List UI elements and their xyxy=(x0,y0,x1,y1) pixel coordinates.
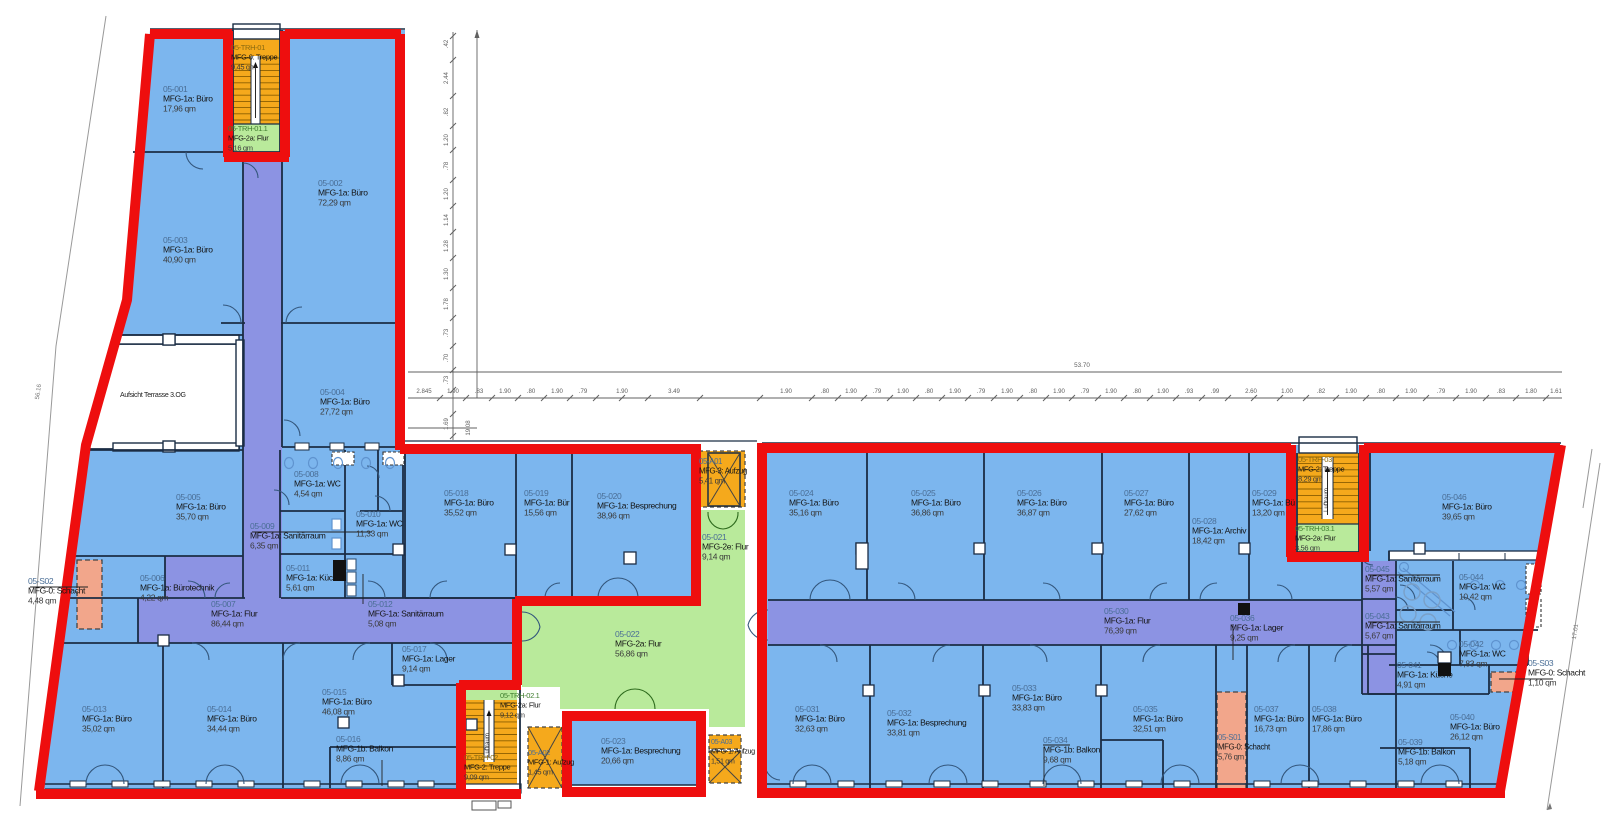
svg-text:35,16 qm: 35,16 qm xyxy=(789,507,822,517)
svg-text:MFG-2a: Flur: MFG-2a: Flur xyxy=(615,639,662,649)
svg-text:MFG-1a: Büro: MFG-1a: Büro xyxy=(911,498,961,508)
svg-text:3,56 qm: 3,56 qm xyxy=(1295,543,1320,552)
svg-text:MFG-1a: Bür: MFG-1a: Bür xyxy=(524,498,570,508)
svg-text:35,70 qm: 35,70 qm xyxy=(176,511,209,521)
svg-text:4,91 qm: 4,91 qm xyxy=(1397,679,1426,689)
svg-text:1.90: 1.90 xyxy=(1053,388,1065,395)
svg-text:MFG-1a: Büro: MFG-1a: Büro xyxy=(207,714,257,724)
svg-text:MFG-0: Treppe: MFG-0: Treppe xyxy=(231,53,277,62)
svg-text:05-TRH-02: 05-TRH-02 xyxy=(464,753,498,762)
svg-text:2.60: 2.60 xyxy=(1245,388,1257,395)
svg-text:86,44 qm: 86,44 qm xyxy=(211,618,244,628)
svg-text:32,51 qm: 32,51 qm xyxy=(1133,723,1166,733)
svg-text:05-042: 05-042 xyxy=(1459,639,1484,649)
svg-text:05-S02: 05-S02 xyxy=(28,576,54,586)
svg-text:2.845: 2.845 xyxy=(416,388,432,395)
svg-text:9,68 qm: 9,68 qm xyxy=(1043,754,1072,764)
svg-text:5,76 qm: 5,76 qm xyxy=(1218,752,1244,761)
svg-text:05-044: 05-044 xyxy=(1459,572,1484,582)
svg-text:1.90: 1.90 xyxy=(1465,388,1477,395)
svg-text:05-012: 05-012 xyxy=(368,599,393,609)
svg-text:05-037: 05-037 xyxy=(1254,704,1279,714)
svg-text:MFG-1a: Küche: MFG-1a: Küche xyxy=(1397,670,1453,680)
svg-text:05-021: 05-021 xyxy=(702,532,727,542)
svg-text:MFG-1a: Büro: MFG-1a: Büro xyxy=(1442,502,1492,512)
svg-text:1.78: 1.78 xyxy=(443,297,450,309)
svg-text:1.90: 1.90 xyxy=(949,388,961,395)
svg-text:9,45 qm: 9,45 qm xyxy=(231,62,256,71)
svg-text:05-007: 05-007 xyxy=(211,599,236,609)
svg-text:MFG-2e: Flur: MFG-2e: Flur xyxy=(702,542,749,552)
svg-text:Aufsicht Terrasse 3.OG: Aufsicht Terrasse 3.OG xyxy=(120,392,186,399)
svg-text:05-TRH-02.1: 05-TRH-02.1 xyxy=(500,691,540,700)
svg-text:8,86 qm: 8,86 qm xyxy=(336,753,365,763)
svg-text:1.61: 1.61 xyxy=(1550,388,1562,395)
svg-text:16,73 qm: 16,73 qm xyxy=(1254,723,1287,733)
svg-text:05-039: 05-039 xyxy=(1398,737,1423,747)
svg-text:9,09 qm: 9,09 qm xyxy=(464,772,489,781)
svg-text:05-038: 05-038 xyxy=(1312,704,1337,714)
svg-text:27,72 qm: 27,72 qm xyxy=(320,406,353,416)
svg-text:MFG-2: Treppe: MFG-2: Treppe xyxy=(464,763,510,772)
svg-text:34,44 qm: 34,44 qm xyxy=(207,723,240,733)
svg-text:.79: .79 xyxy=(1081,388,1090,395)
svg-text:3.49: 3.49 xyxy=(668,388,680,395)
svg-text:05-045: 05-045 xyxy=(1365,564,1390,574)
svg-text:26,12 qm: 26,12 qm xyxy=(1450,731,1483,741)
svg-text:4,22 qm: 4,22 qm xyxy=(140,592,169,602)
svg-text:.73: .73 xyxy=(443,328,450,337)
svg-text:9,14 qm: 9,14 qm xyxy=(702,551,731,561)
svg-text:.99: .99 xyxy=(1211,388,1220,395)
svg-text:9,12 qm: 9,12 qm xyxy=(500,710,525,719)
svg-text:46,08 qm: 46,08 qm xyxy=(322,706,355,716)
svg-text:05-018: 05-018 xyxy=(444,488,469,498)
svg-text:MFG-1b: Balkon: MFG-1b: Balkon xyxy=(1043,745,1101,755)
svg-text:05-046: 05-046 xyxy=(1442,492,1467,502)
svg-text:.83: .83 xyxy=(1497,388,1506,395)
svg-text:1.90: 1.90 xyxy=(499,388,511,395)
svg-text:05-S01: 05-S01 xyxy=(1218,733,1241,742)
svg-text:4,54 qm: 4,54 qm xyxy=(294,488,323,498)
svg-text:MFG-2: Treppe: MFG-2: Treppe xyxy=(1298,465,1344,474)
svg-text:MFG-1a: Besprechung: MFG-1a: Besprechung xyxy=(887,718,967,728)
svg-text:32,63 qm: 32,63 qm xyxy=(795,723,828,733)
svg-text:5,57 qm: 5,57 qm xyxy=(1365,583,1394,593)
svg-text:6,35 qm: 6,35 qm xyxy=(250,540,279,550)
svg-text:10,42 qm: 10,42 qm xyxy=(1459,591,1492,601)
svg-text:1.90: 1.90 xyxy=(551,388,563,395)
svg-text:05-A03: 05-A03 xyxy=(711,737,732,746)
svg-text:36,86 qm: 36,86 qm xyxy=(911,507,944,517)
svg-text:5,67 qm: 5,67 qm xyxy=(1365,630,1394,640)
svg-text:5,16 qm: 5,16 qm xyxy=(228,143,253,152)
svg-text:05-003: 05-003 xyxy=(163,235,188,245)
svg-text:56,86 qm: 56,86 qm xyxy=(615,648,648,658)
svg-text:MFG-1a: Büro: MFG-1a: Büro xyxy=(1012,693,1062,703)
svg-text:05-028: 05-028 xyxy=(1192,516,1217,526)
svg-text:05-022: 05-022 xyxy=(615,629,640,639)
svg-text:05-035: 05-035 xyxy=(1133,704,1158,714)
svg-text:.93: .93 xyxy=(1185,388,1194,395)
svg-text:.80: .80 xyxy=(527,388,536,395)
svg-text:1.90: 1.90 xyxy=(1405,388,1417,395)
svg-text:05-040: 05-040 xyxy=(1450,712,1475,722)
svg-text:1.90: 1.90 xyxy=(780,388,792,395)
svg-text:.83: .83 xyxy=(475,388,484,395)
svg-text:MFG-1a: WC: MFG-1a: WC xyxy=(1459,582,1506,592)
svg-text:8,29 qm: 8,29 qm xyxy=(1298,474,1323,483)
svg-text:18,42 qm: 18,42 qm xyxy=(1192,535,1225,545)
svg-text:.79: .79 xyxy=(579,388,588,395)
svg-text:.79: .79 xyxy=(1437,388,1446,395)
svg-text:1.00: 1.00 xyxy=(1281,388,1293,395)
svg-text:5,41 qm: 5,41 qm xyxy=(699,476,725,485)
svg-text:1,45 qm: 1,45 qm xyxy=(528,767,553,776)
svg-text:53.70: 53.70 xyxy=(1074,362,1090,369)
svg-text:5,18 qm: 5,18 qm xyxy=(1398,756,1427,766)
svg-text:MFG-2a: Flur: MFG-2a: Flur xyxy=(1295,534,1336,543)
svg-text:1.28: 1.28 xyxy=(443,239,450,251)
svg-text:05-020: 05-020 xyxy=(597,491,622,501)
svg-text:.79: .79 xyxy=(873,388,882,395)
svg-text:05-015: 05-015 xyxy=(322,687,347,697)
svg-text:MFG-1a: Lager: MFG-1a: Lager xyxy=(1230,623,1284,633)
svg-text:MFG-1a: Büro: MFG-1a: Büro xyxy=(444,498,494,508)
svg-text:05-023: 05-023 xyxy=(601,736,626,746)
svg-text:2.44: 2.44 xyxy=(443,71,450,83)
svg-text:.80: .80 xyxy=(1029,388,1038,395)
svg-text:.82: .82 xyxy=(1317,388,1326,395)
svg-text:.80: .80 xyxy=(821,388,830,395)
svg-text:72,29 qm: 72,29 qm xyxy=(318,197,351,207)
svg-text:05-029: 05-029 xyxy=(1252,488,1277,498)
svg-text:13,20 qm: 13,20 qm xyxy=(1252,507,1285,517)
svg-text:05-033: 05-033 xyxy=(1012,683,1037,693)
svg-text:.80: .80 xyxy=(925,388,934,395)
svg-text:MFG-1a: Büro: MFG-1a: Büro xyxy=(82,714,132,724)
svg-text:1.90: 1.90 xyxy=(1001,388,1013,395)
svg-text:05-032: 05-032 xyxy=(887,708,912,718)
svg-text:MFG-1a: WC: MFG-1a: WC xyxy=(294,479,341,489)
svg-text:11,33 qm: 11,33 qm xyxy=(356,528,388,538)
svg-text:76,39 qm: 76,39 qm xyxy=(1104,625,1137,635)
svg-text:MFG-1a: Bürotechnik: MFG-1a: Bürotechnik xyxy=(140,583,215,593)
svg-text:15,56 qm: 15,56 qm xyxy=(524,507,557,517)
svg-text:1.14: 1.14 xyxy=(443,213,450,225)
svg-text:MFG-3: Aufzug: MFG-3: Aufzug xyxy=(699,467,747,476)
svg-text:1.90: 1.90 xyxy=(1105,388,1117,395)
svg-text:1,51 qm: 1,51 qm xyxy=(711,756,735,765)
svg-text:05-008: 05-008 xyxy=(294,469,319,479)
svg-text:05-005: 05-005 xyxy=(176,492,201,502)
svg-text:MFG-1a: WC: MFG-1a: WC xyxy=(1459,649,1506,659)
svg-text:05-024: 05-024 xyxy=(789,488,814,498)
svg-text:05-TRH-01.1: 05-TRH-01.1 xyxy=(228,124,268,133)
svg-text:5,61 qm: 5,61 qm xyxy=(286,582,315,592)
svg-text:05-026: 05-026 xyxy=(1017,488,1042,498)
svg-text:MFG-1b: Balkon: MFG-1b: Balkon xyxy=(336,744,394,754)
svg-text:MFG-1: Aufzug: MFG-1: Aufzug xyxy=(528,758,574,767)
svg-text:.80: .80 xyxy=(1133,388,1142,395)
svg-text:MFG-1: Aufzug: MFG-1: Aufzug xyxy=(711,747,755,756)
svg-text:05-013: 05-013 xyxy=(82,704,107,714)
svg-text:17,86 qm: 17,86 qm xyxy=(1312,723,1345,733)
svg-text:MFG-1a: Sanitärraum: MFG-1a: Sanitärraum xyxy=(368,609,444,619)
svg-text:MFG-1a: Büro: MFG-1a: Büro xyxy=(1450,722,1500,732)
svg-text:05-034: 05-034 xyxy=(1043,735,1068,745)
svg-text:MFG-0: Schacht: MFG-0: Schacht xyxy=(1218,743,1271,752)
svg-text:20,66 qm: 20,66 qm xyxy=(601,755,634,765)
svg-text:1.90: 1.90 xyxy=(616,388,628,395)
svg-text:05-001: 05-001 xyxy=(163,84,188,94)
svg-text:36,87 qm: 36,87 qm xyxy=(1017,507,1050,517)
svg-text:MFG-2a: Flur: MFG-2a: Flur xyxy=(500,701,541,710)
svg-text:1.90: 1.90 xyxy=(897,388,909,395)
svg-text:39,65 qm: 39,65 qm xyxy=(1442,511,1475,521)
svg-text:.82: .82 xyxy=(443,107,450,116)
svg-text:1.20: 1.20 xyxy=(443,133,450,145)
svg-text:05-030: 05-030 xyxy=(1104,606,1129,616)
svg-text:MFG-1a: Büro: MFG-1a: Büro xyxy=(1133,714,1183,724)
svg-text:05-036: 05-036 xyxy=(1230,613,1255,623)
svg-text:05-004: 05-004 xyxy=(320,387,345,397)
svg-text:MFG-1a: Büro: MFG-1a: Büro xyxy=(320,397,370,407)
svg-text:4,48 qm: 4,48 qm xyxy=(28,595,57,605)
svg-text:1.80: 1.80 xyxy=(1525,388,1537,395)
svg-text:MFG-1a: Büro: MFG-1a: Büro xyxy=(163,245,213,255)
svg-text:27,62 qm: 27,62 qm xyxy=(1124,507,1157,517)
svg-text:1.90: 1.90 xyxy=(845,388,857,395)
svg-text:MFG-0: Schacht: MFG-0: Schacht xyxy=(1528,668,1586,678)
svg-text:MFG-1a: Flur: MFG-1a: Flur xyxy=(1104,616,1151,626)
svg-text:MFG-1a: Besprechung: MFG-1a: Besprechung xyxy=(597,501,677,511)
svg-text:05-S03: 05-S03 xyxy=(1528,658,1554,668)
svg-text:1.30: 1.30 xyxy=(443,267,450,279)
svg-text:MFG-1a: Büro: MFG-1a: Büro xyxy=(318,188,368,198)
svg-text:05-016: 05-016 xyxy=(336,734,361,744)
svg-text:05-017: 05-017 xyxy=(402,644,427,654)
svg-text:MFG-1a: Büro: MFG-1a: Büro xyxy=(1312,714,1362,724)
svg-text:05-011: 05-011 xyxy=(286,563,310,573)
svg-text:33,81 qm: 33,81 qm xyxy=(887,727,920,737)
svg-text:1.90: 1.90 xyxy=(1345,388,1357,395)
svg-text:05-002: 05-002 xyxy=(318,178,343,188)
svg-text:05-006: 05-006 xyxy=(140,573,165,583)
svg-text:MFG-1a: Besprechung: MFG-1a: Besprechung xyxy=(601,746,681,756)
svg-text:05-009: 05-009 xyxy=(250,521,275,531)
svg-text:MFG-1a: Büro: MFG-1a: Büro xyxy=(163,94,213,104)
svg-text:MFG-1a: Büro: MFG-1a: Büro xyxy=(176,502,226,512)
svg-text:33,83 qm: 33,83 qm xyxy=(1012,702,1045,712)
svg-text:35,02 qm: 35,02 qm xyxy=(82,723,115,733)
svg-text:1.20: 1.20 xyxy=(443,187,450,199)
svg-text:05-041: 05-041 xyxy=(1397,660,1422,670)
svg-text:.70: .70 xyxy=(443,353,450,362)
svg-text:17,96 qm: 17,96 qm xyxy=(163,103,196,113)
svg-text:05-010: 05-010 xyxy=(356,509,381,519)
svg-text:.78: .78 xyxy=(443,161,450,170)
svg-text:5,08 qm: 5,08 qm xyxy=(368,618,397,628)
svg-text:35,52 qm: 35,52 qm xyxy=(444,507,477,517)
svg-text:MFG-1a: Archiv: MFG-1a: Archiv xyxy=(1192,526,1247,536)
svg-text:Luftraum: Luftraum xyxy=(1324,488,1330,512)
svg-text:38,96 qm: 38,96 qm xyxy=(597,510,630,520)
svg-text:40,90 qm: 40,90 qm xyxy=(163,254,196,264)
svg-text:MFG-1a: Küche: MFG-1a: Küche xyxy=(286,573,342,583)
svg-text:05-A01: 05-A01 xyxy=(699,457,722,466)
svg-text:.42: .42 xyxy=(443,39,450,48)
svg-text:.73: .73 xyxy=(443,375,450,384)
svg-text:.80: .80 xyxy=(1377,388,1386,395)
svg-text:05-TRH-03: 05-TRH-03 xyxy=(1298,455,1332,464)
svg-text:05-025: 05-025 xyxy=(911,488,936,498)
svg-text:05-043: 05-043 xyxy=(1365,611,1390,621)
svg-text:MFG-1a: WC: MFG-1a: WC xyxy=(356,519,403,529)
svg-text:MFG-1a: Lager: MFG-1a: Lager xyxy=(402,654,456,664)
svg-text:MFG-1a: Bü: MFG-1a: Bü xyxy=(1252,498,1295,508)
svg-text:MFG-2a: Flur: MFG-2a: Flur xyxy=(228,134,269,143)
svg-text:05-027: 05-027 xyxy=(1124,488,1149,498)
svg-text:05-TRH-01: 05-TRH-01 xyxy=(231,43,265,52)
svg-text:9,14 qm: 9,14 qm xyxy=(402,663,431,673)
svg-text:1.90: 1.90 xyxy=(1157,388,1169,395)
svg-text:05-031: 05-031 xyxy=(795,704,820,714)
svg-text:9,25 qm: 9,25 qm xyxy=(1230,632,1259,642)
svg-text:MFG-1a: Büro: MFG-1a: Büro xyxy=(322,697,372,707)
svg-text:MFG-1a: Büro: MFG-1a: Büro xyxy=(1124,498,1174,508)
svg-text:.79: .79 xyxy=(977,388,986,395)
svg-text:MFG-1a: Büro: MFG-1a: Büro xyxy=(789,498,839,508)
svg-text:MFG-1a: Büro: MFG-1a: Büro xyxy=(1254,714,1304,724)
svg-text:05-014: 05-014 xyxy=(207,704,232,714)
svg-text:MFG-1a: Büro: MFG-1a: Büro xyxy=(795,714,845,724)
svg-text:MFG-1a: Büro: MFG-1a: Büro xyxy=(1017,498,1067,508)
svg-text:05-TRH-03.1: 05-TRH-03.1 xyxy=(1295,524,1335,533)
svg-text:MFG-1a: Flur: MFG-1a: Flur xyxy=(211,609,258,619)
svg-text:7,83 qm: 7,83 qm xyxy=(1459,658,1488,668)
svg-text:MFG-1b: Balkon: MFG-1b: Balkon xyxy=(1398,747,1456,757)
svg-text:05-019: 05-019 xyxy=(524,488,549,498)
svg-text:05-A02: 05-A02 xyxy=(528,748,550,757)
